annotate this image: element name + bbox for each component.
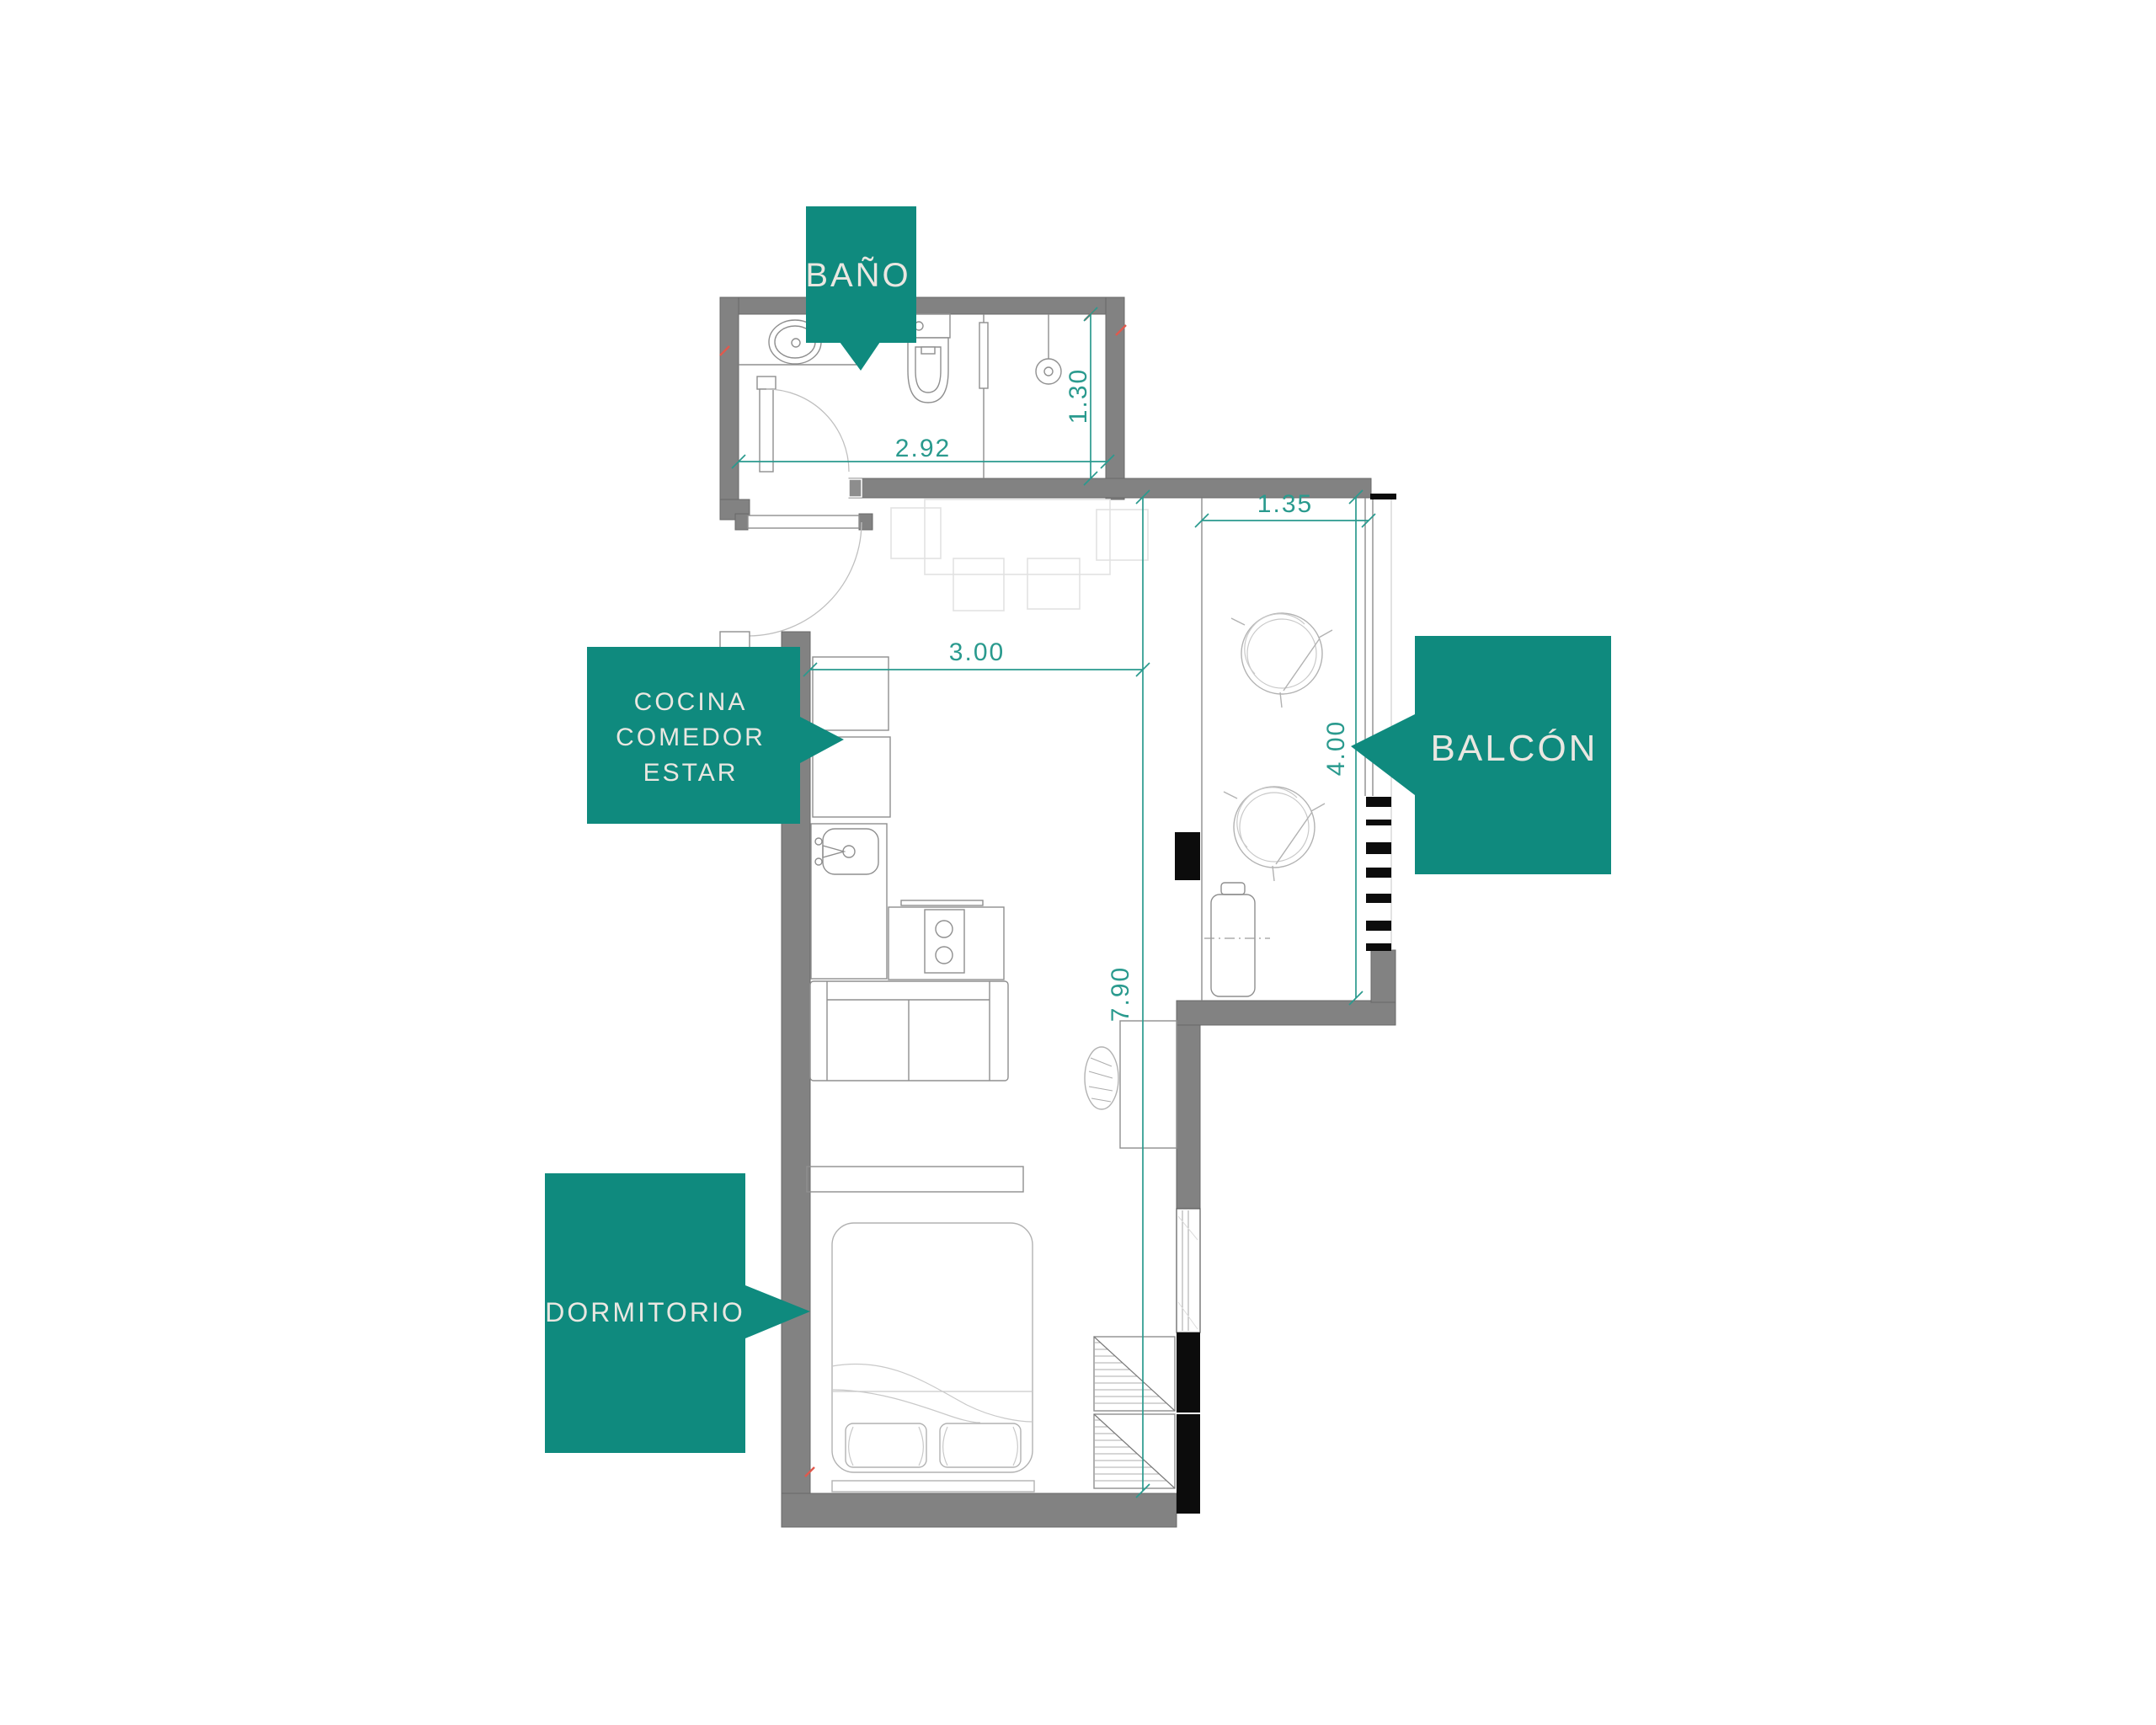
bedroom-shelf bbox=[807, 1167, 1023, 1192]
label-cocina-line2: COMEDOR bbox=[616, 724, 766, 751]
shower-door-panel bbox=[979, 323, 988, 388]
bedroom bbox=[807, 1167, 1034, 1492]
dining-table bbox=[925, 499, 1110, 574]
label-bano-pointer bbox=[840, 342, 880, 371]
railing-top-bar bbox=[1370, 494, 1396, 499]
wall-balcony-east bbox=[1371, 950, 1396, 1002]
louver-diagonal bbox=[1094, 1414, 1175, 1488]
louver-hatch bbox=[1094, 1343, 1175, 1403]
floor-plan: 2.92 1.30 3.00 7.90 1.35 4.00 bbox=[0, 0, 2156, 1725]
entry-door-hinge-cap bbox=[735, 514, 748, 530]
door-jamb-cap bbox=[849, 479, 862, 497]
stove-counter bbox=[889, 907, 1004, 980]
sofa-cushions bbox=[827, 981, 990, 1081]
dining-chair bbox=[891, 508, 941, 558]
structural-column bbox=[1177, 1332, 1200, 1413]
shower-head-center bbox=[1044, 367, 1053, 376]
dim-text-bathroom-width: 2.92 bbox=[895, 435, 951, 462]
dim-text-bathroom-depth: 1.30 bbox=[1065, 368, 1092, 424]
bathroom-door-leaf bbox=[760, 389, 773, 472]
louver-diagonal bbox=[1094, 1337, 1175, 1411]
bathroom-door-frame bbox=[757, 377, 776, 389]
dining-chair bbox=[953, 558, 1004, 611]
bed-base-strip bbox=[832, 1481, 1034, 1492]
dim-text-living-width: 3.00 bbox=[949, 638, 1005, 666]
wall-bathroom-top bbox=[720, 297, 1124, 314]
dim-text-balcony-length: 4.00 bbox=[1322, 720, 1350, 776]
label-bano-text: BAÑO bbox=[805, 256, 910, 294]
pillow bbox=[846, 1423, 926, 1467]
label-balcon: BALCÓN bbox=[1351, 636, 1611, 874]
dining-chair bbox=[1027, 558, 1080, 609]
label-balcon-text: BALCÓN bbox=[1431, 728, 1598, 769]
east-wall-elements bbox=[1177, 1209, 1200, 1514]
wall-bathroom-left bbox=[720, 297, 739, 499]
balcony-round-chair bbox=[1231, 613, 1332, 708]
kitchen-faucet-handle bbox=[815, 838, 822, 845]
desk-area bbox=[1085, 1021, 1177, 1148]
desk bbox=[1120, 1021, 1177, 1148]
burner bbox=[936, 921, 953, 937]
dim-text-unit-length: 7.90 bbox=[1107, 966, 1134, 1022]
dim-bathroom-depth: 1.30 bbox=[1065, 307, 1097, 485]
pillow-creases bbox=[849, 1427, 924, 1466]
kitchen-hood-edge bbox=[901, 900, 983, 905]
stair-louver-panels bbox=[1094, 1337, 1175, 1488]
shower-head bbox=[1036, 359, 1061, 384]
label-dormitorio-text: DORMITORIO bbox=[545, 1297, 744, 1327]
label-cocina-pointer bbox=[800, 717, 844, 763]
balcony-round-chair bbox=[1224, 787, 1325, 881]
wall-east bbox=[1177, 1025, 1200, 1209]
toilet-seat-hinge bbox=[921, 347, 935, 354]
dim-bathroom-width: 2.92 bbox=[732, 435, 1114, 468]
label-dormitorio: DORMITORIO bbox=[545, 1173, 810, 1453]
label-balcon-pointer bbox=[1351, 714, 1415, 795]
burner bbox=[936, 947, 953, 964]
louver-hatch bbox=[1094, 1420, 1175, 1481]
kitchen-faucet-spout bbox=[823, 846, 844, 857]
dining-set bbox=[891, 499, 1148, 611]
wall-balcony-south bbox=[1177, 1001, 1396, 1025]
kitchen bbox=[811, 657, 1004, 980]
balcony-lounger bbox=[1204, 883, 1270, 996]
bed bbox=[832, 1223, 1033, 1472]
label-cocina-line1: COCINA bbox=[634, 688, 748, 716]
label-cocina-line3: ESTAR bbox=[643, 759, 739, 787]
entry-door-leaf bbox=[748, 515, 859, 528]
bed-blanket-wave bbox=[832, 1364, 1033, 1422]
wall-bathroom-right bbox=[1106, 297, 1124, 499]
kitchen-counter bbox=[813, 657, 889, 730]
bathroom-door-swing bbox=[766, 389, 849, 472]
dim-text-balcony-width: 1.35 bbox=[1257, 490, 1313, 518]
pillow bbox=[940, 1423, 1021, 1467]
structural-column bbox=[1177, 1414, 1200, 1514]
bed-blanket-wave bbox=[832, 1390, 980, 1423]
entry-door-swing bbox=[748, 522, 862, 636]
kitchen-sink bbox=[823, 829, 878, 874]
walls bbox=[720, 297, 1396, 1527]
entry-door-open-position bbox=[720, 632, 750, 649]
label-bano: BAÑO bbox=[805, 206, 916, 371]
pillow-creases bbox=[943, 1427, 1018, 1466]
kitchen-faucet-handle bbox=[815, 858, 822, 865]
railing-bars bbox=[1366, 797, 1391, 951]
dim-unit-length: 7.90 bbox=[1107, 490, 1150, 1498]
desk-chair-hatch bbox=[1089, 1058, 1113, 1102]
balcony-column bbox=[1175, 832, 1200, 880]
sofa bbox=[810, 981, 1008, 1081]
dining-chair bbox=[1097, 510, 1148, 560]
entry bbox=[720, 514, 873, 649]
wall-south bbox=[782, 1493, 1177, 1527]
